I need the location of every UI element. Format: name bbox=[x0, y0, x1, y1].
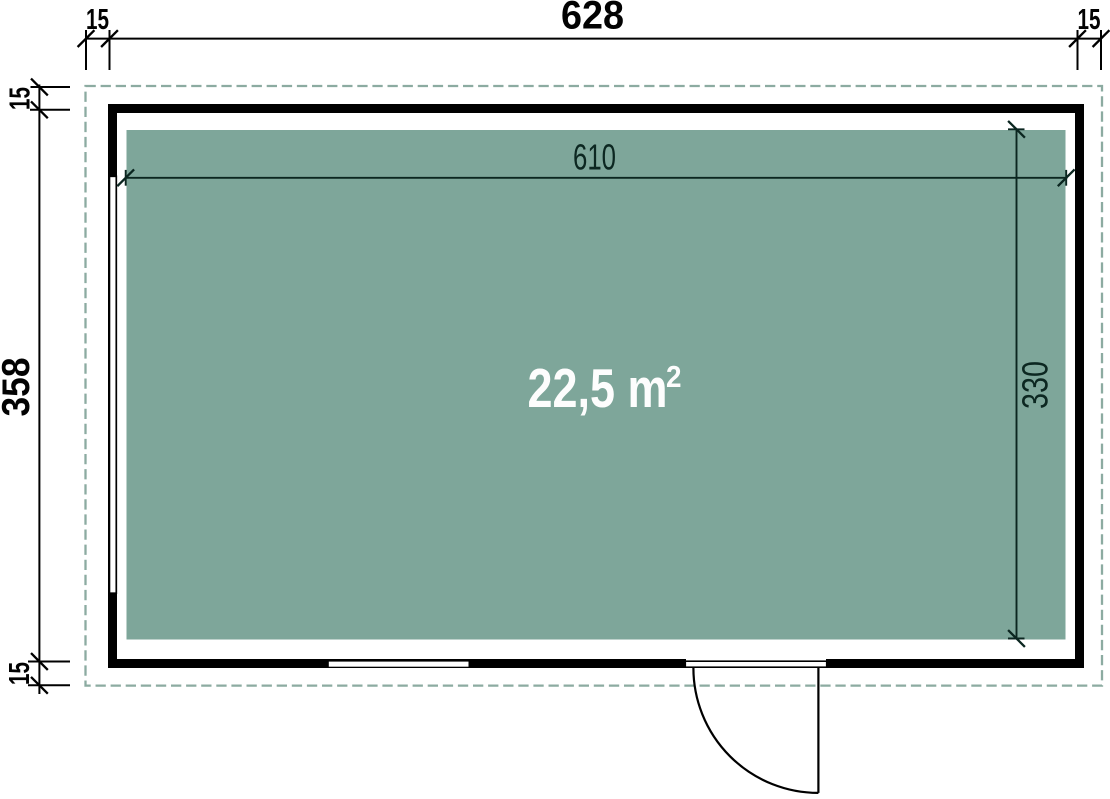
svg-text:610: 610 bbox=[573, 137, 616, 178]
svg-text:22,5 m: 22,5 m bbox=[528, 357, 668, 419]
svg-text:15: 15 bbox=[1078, 4, 1101, 36]
svg-text:358: 358 bbox=[0, 358, 38, 417]
svg-text:628: 628 bbox=[561, 0, 624, 38]
svg-text:15: 15 bbox=[86, 4, 109, 36]
svg-text:15: 15 bbox=[4, 662, 36, 685]
svg-text:15: 15 bbox=[5, 87, 37, 110]
svg-text:2: 2 bbox=[666, 359, 682, 394]
svg-text:330: 330 bbox=[1015, 361, 1056, 409]
